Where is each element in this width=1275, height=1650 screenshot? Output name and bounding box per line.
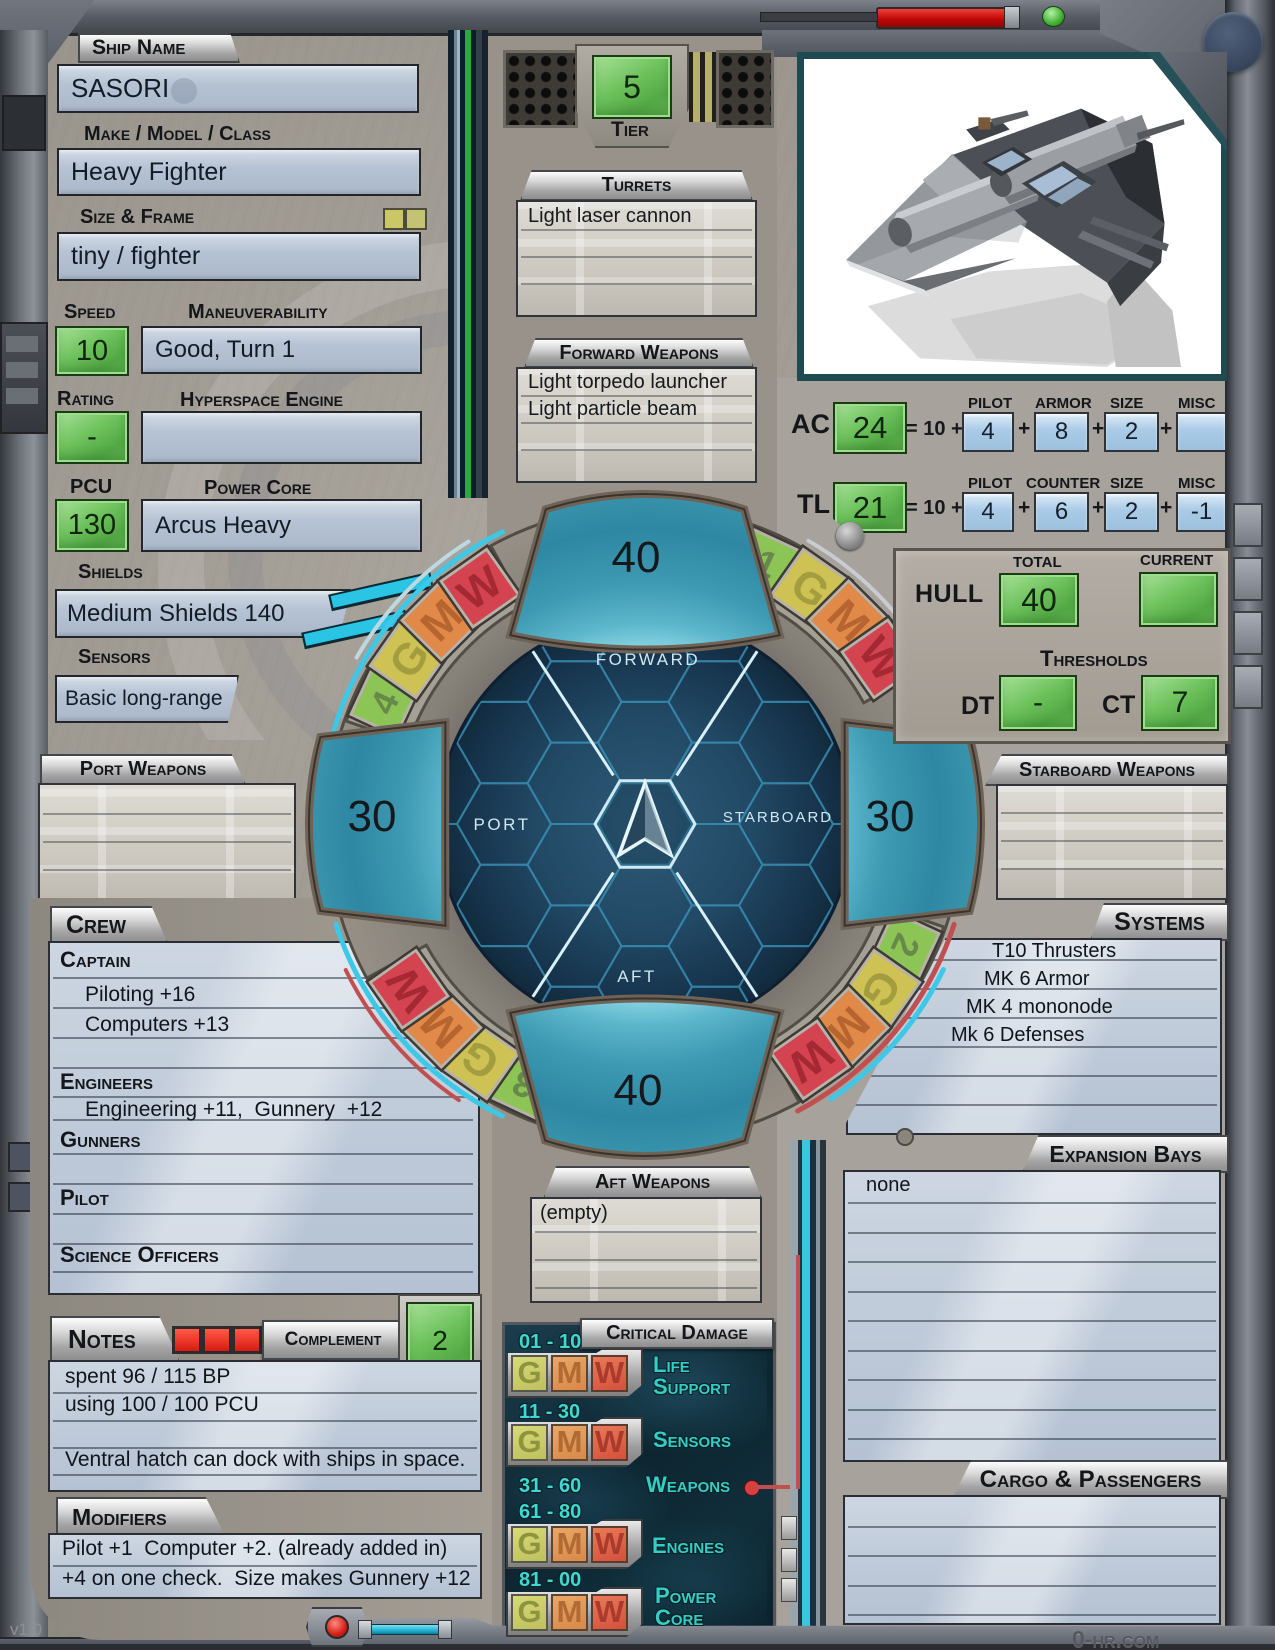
svg-text:40: 40 bbox=[612, 533, 661, 582]
svg-text:40: 40 bbox=[614, 1066, 663, 1115]
svg-text:STARBOARD: STARBOARD bbox=[723, 809, 833, 826]
svg-text:30: 30 bbox=[866, 792, 915, 841]
svg-text:AFT: AFT bbox=[617, 967, 657, 986]
svg-text:PORT: PORT bbox=[474, 815, 531, 834]
svg-text:30: 30 bbox=[348, 792, 397, 841]
